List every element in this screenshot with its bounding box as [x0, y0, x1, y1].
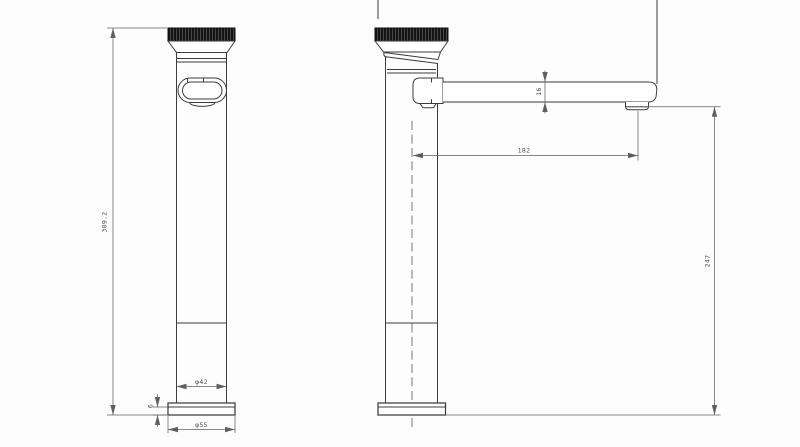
- knob-side: [375, 28, 448, 41]
- dim-label-base-thickness: 6: [147, 404, 155, 408]
- spout-front: [178, 78, 227, 106]
- faucet-orthographic-drawing: 309.2 φ42 φ55 6: [0, 0, 800, 447]
- dimension-base-thickness: 6: [147, 394, 169, 427]
- dim-label-overall-height: 309.2: [101, 211, 109, 232]
- front-view: 309.2 φ42 φ55 6: [101, 28, 236, 433]
- spout-joint-side: [413, 78, 443, 108]
- dimension-overall-height: 309.2: [101, 28, 168, 415]
- dim-label-body-diameter: φ42: [195, 378, 208, 386]
- spout-tube-side: [443, 82, 657, 102]
- technical-drawing-sheet: 309.2 φ42 φ55 6: [0, 0, 800, 447]
- aerator-front: [190, 103, 216, 107]
- dimension-outlet-height: 247: [446, 107, 721, 415]
- dim-label-outlet-height: 247: [704, 255, 712, 268]
- dimension-base-diameter: φ55: [168, 416, 235, 433]
- knob-collar-front: [168, 41, 235, 53]
- dimension-body-diameter: φ42: [177, 378, 227, 387]
- body-side: [386, 57, 438, 403]
- knob-collar-side: [375, 41, 448, 52]
- knob-rim-side: [384, 52, 441, 64]
- dim-label-base-diameter: φ55: [195, 421, 208, 429]
- aerator-side: [626, 102, 649, 110]
- dimension-spout-reach: 182: [413, 111, 638, 161]
- side-view: 16 182 247: [375, 0, 721, 431]
- dim-label-spout-height: 16: [535, 87, 543, 95]
- base-side: [378, 403, 446, 415]
- knob-front: [168, 28, 235, 41]
- dim-label-spout-reach: 182: [518, 147, 531, 155]
- body-front: [177, 53, 227, 404]
- base-front: [168, 403, 235, 415]
